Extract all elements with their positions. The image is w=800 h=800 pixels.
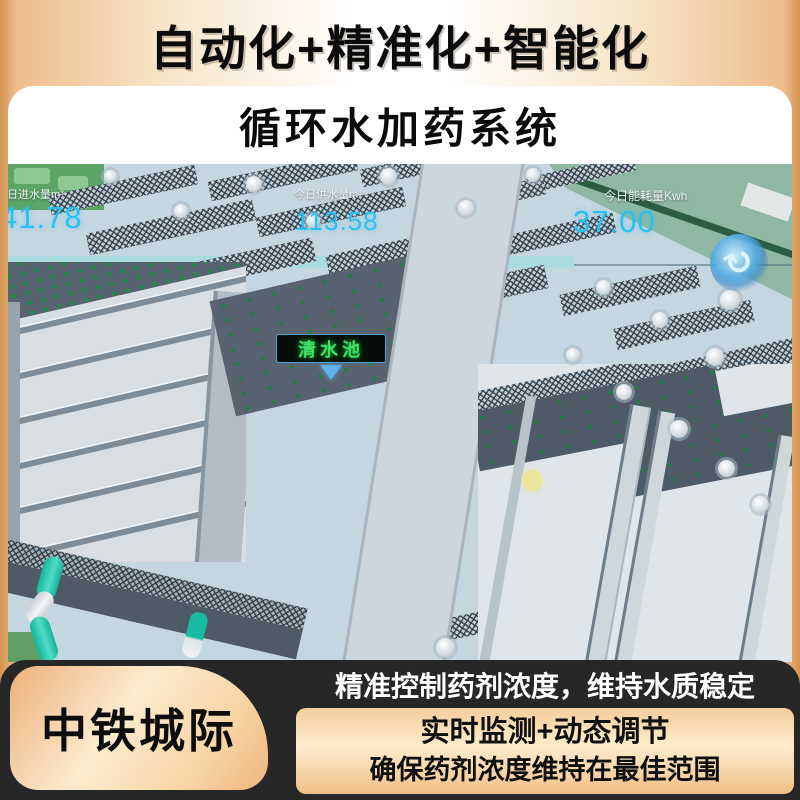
metric-value-energy: 37.00 (573, 204, 656, 240)
pump-icon (752, 496, 769, 513)
page-subtitle: 循环水加药系统 (8, 86, 792, 164)
plant-3d-viewport[interactable]: ↻ 今日进水量m³ 41.78 今日供水量m³ 113.58 今日能耗量Kwh … (8, 164, 792, 662)
pump-icon (652, 312, 668, 328)
tank-left-edge (8, 302, 20, 562)
metric-value-supply: 113.58 (295, 206, 379, 237)
pump-icon (720, 290, 740, 310)
pipe-elbow (26, 556, 96, 662)
footer-panel: 实时监测+动态调节 确保药剂浓度维持在最佳范围 (296, 708, 794, 794)
footer-line-1: 实时监测+动态调节 (421, 713, 670, 752)
footer-line-2: 确保药剂浓度维持在最佳范围 (370, 752, 721, 788)
pump-icon (566, 348, 580, 362)
pump-icon (380, 168, 397, 185)
page-title: 自动化+精准化+智能化 (0, 0, 800, 88)
pump-icon (174, 204, 188, 218)
compass-icon[interactable]: ↻ (710, 234, 768, 292)
pump-icon (670, 420, 688, 438)
metric-value-intake: 41.78 (8, 200, 83, 236)
metric-label-supply: 今日供水量m³ (294, 186, 362, 202)
pump-icon (616, 384, 632, 400)
diffuser-dots (8, 262, 246, 323)
pump-icon (718, 460, 735, 477)
pump-icon (458, 200, 474, 216)
footer-headline: 精准控制药剂浓度，维持水质稳定 (296, 666, 794, 704)
yellow-marker (522, 470, 543, 491)
pump-icon (104, 170, 117, 183)
right-tank-complex (478, 364, 792, 662)
pump-icon (596, 280, 611, 295)
pump-icon (526, 168, 540, 182)
footer-band: 中铁城际 精准控制药剂浓度，维持水质稳定 实时监测+动态调节 确保药剂浓度维持在… (0, 660, 800, 800)
tree-row (14, 168, 50, 184)
metric-label-energy: 今日能耗量Kwh (604, 187, 687, 204)
brand-badge: 中铁城际 (10, 666, 268, 790)
pump-icon (246, 176, 262, 192)
pipe-segment (27, 614, 60, 662)
grating-row (86, 199, 257, 256)
pump-icon (436, 638, 455, 657)
triangle-down-icon (320, 365, 342, 380)
pool-label: 清水池 (276, 334, 386, 363)
rotate-glyph: ↻ (717, 239, 762, 288)
tank-dark-wall (8, 262, 246, 323)
pump-icon (706, 348, 724, 366)
grating-row (559, 266, 701, 317)
